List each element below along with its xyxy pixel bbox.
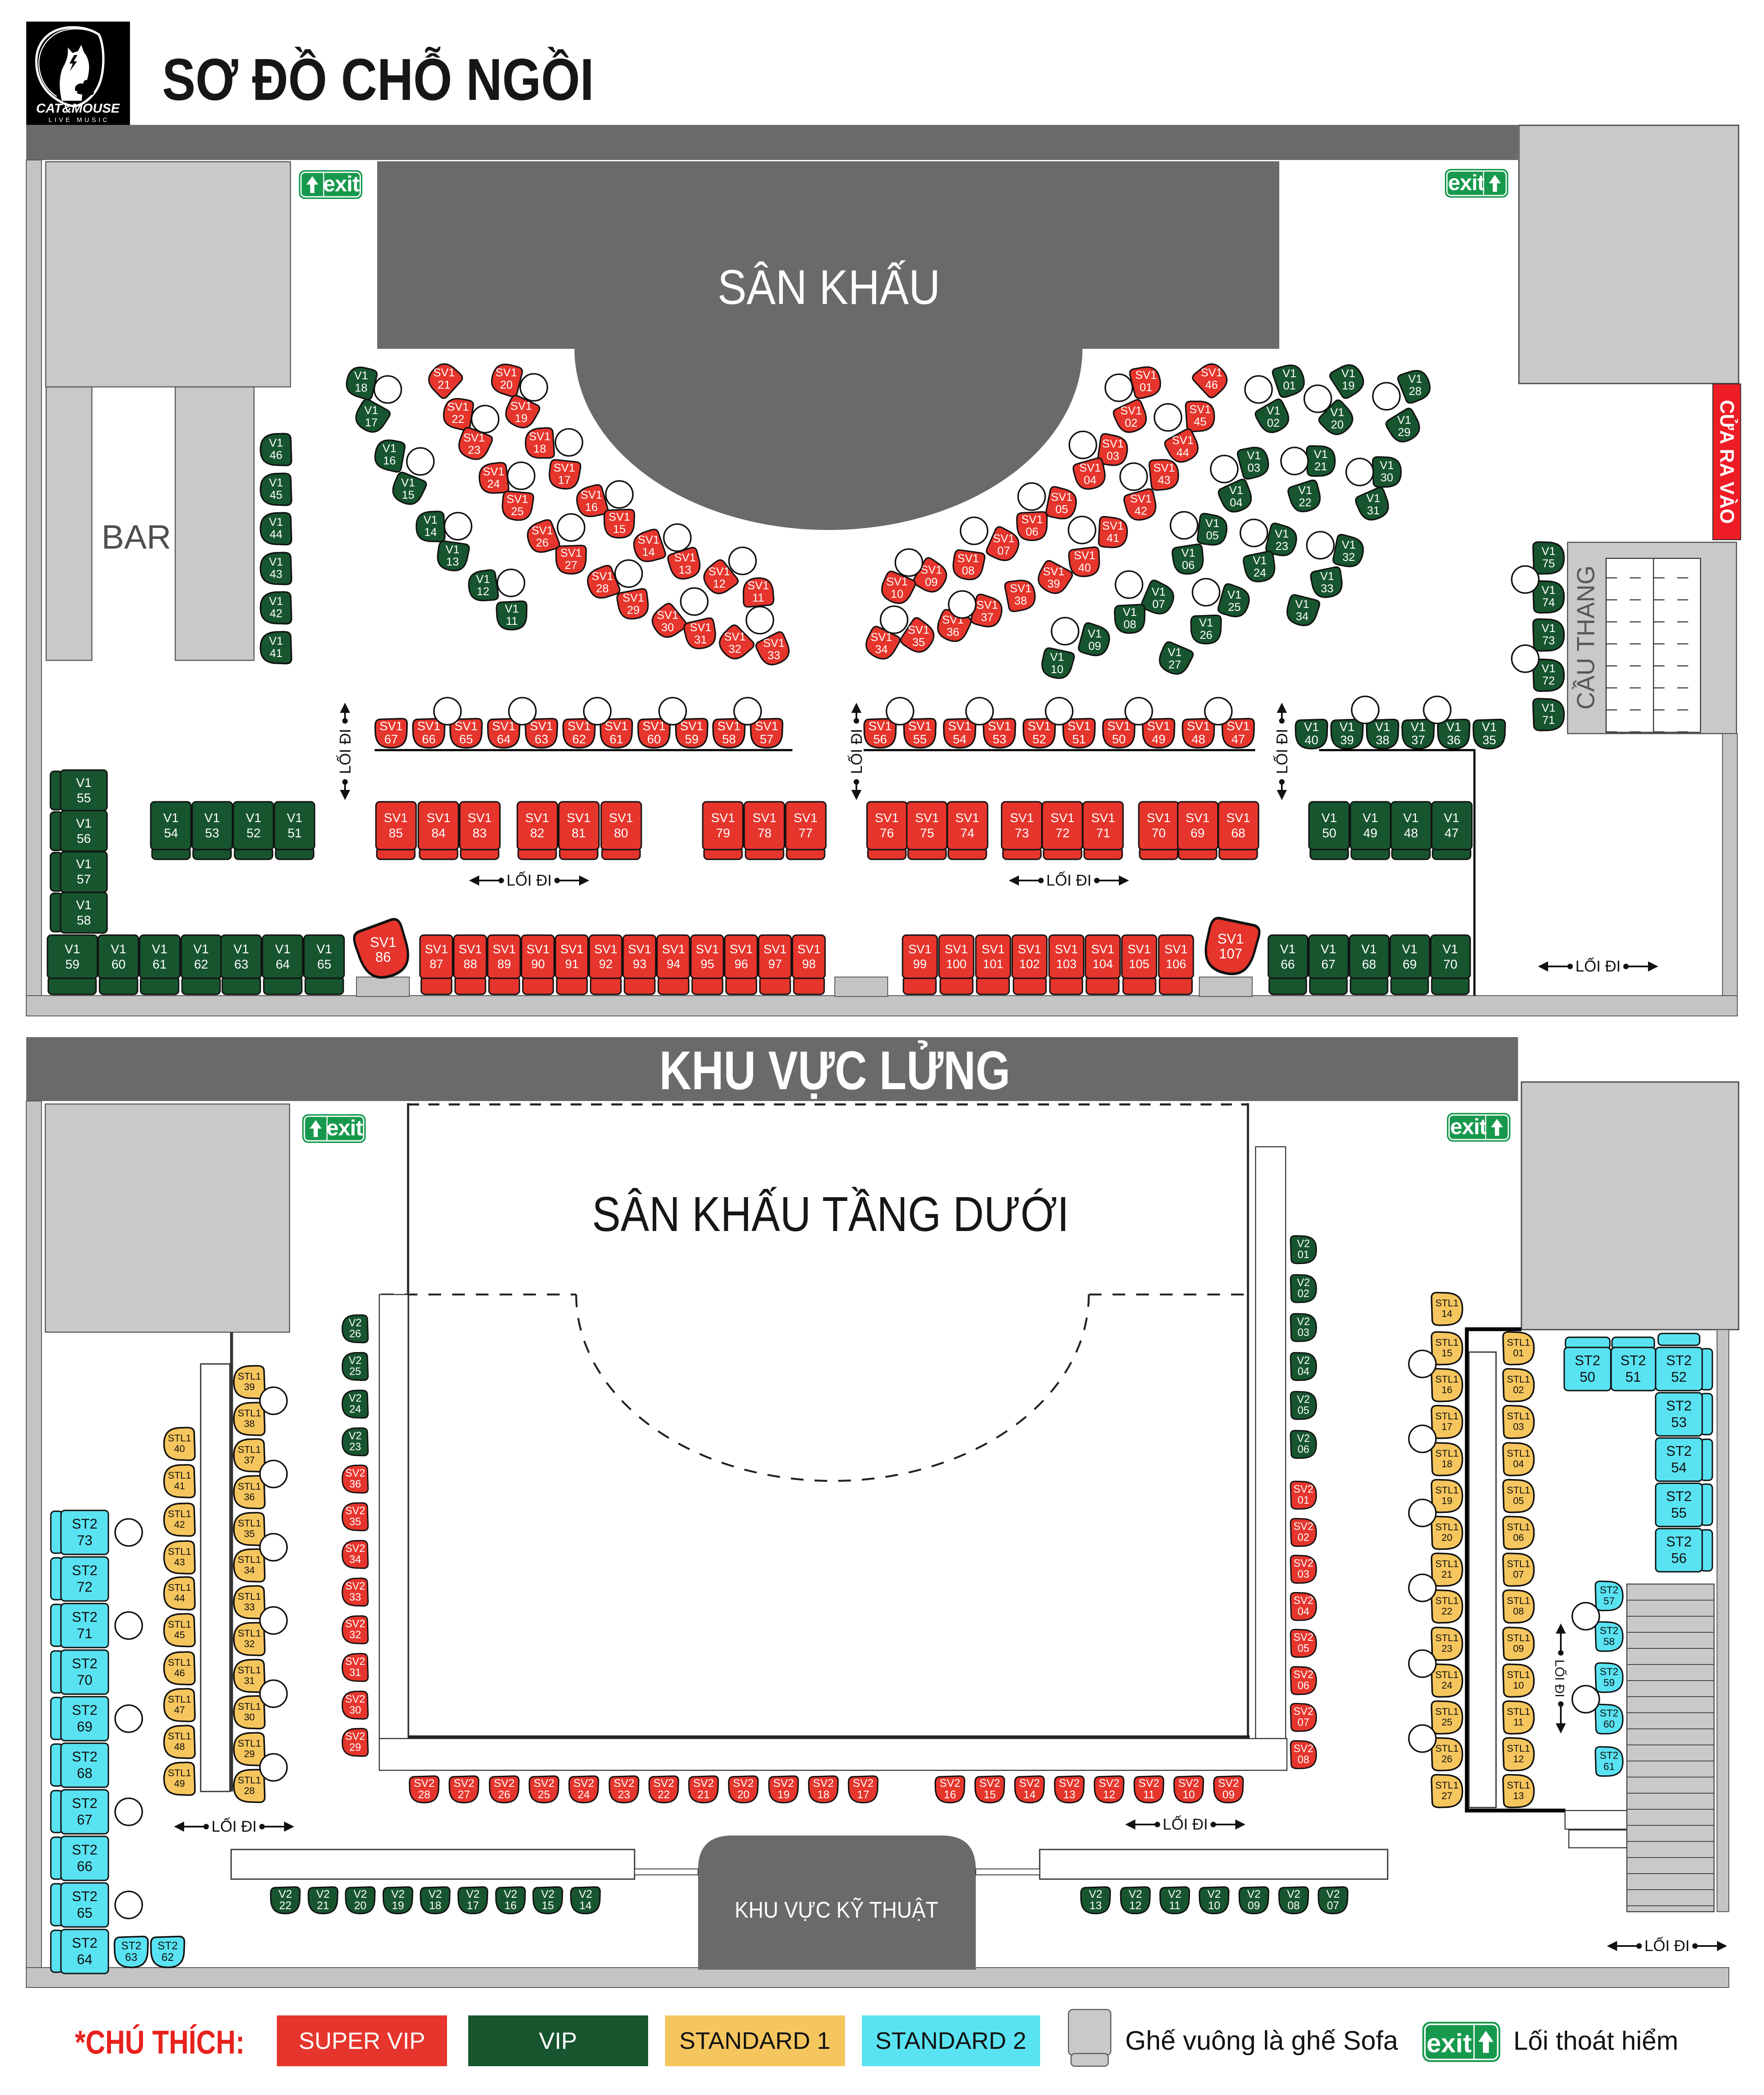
svg-text:SƠ ĐỒ CHỖ NGỒI: SƠ ĐỒ CHỖ NGỒI <box>162 46 594 113</box>
svg-text:LỐI ĐI: LỐI ĐI <box>1273 729 1291 774</box>
svg-text:V101: V101 <box>1282 367 1296 392</box>
svg-text:V212: V212 <box>1129 1888 1142 1912</box>
svg-text:V201: V201 <box>1297 1238 1310 1261</box>
svg-text:V221: V221 <box>316 1888 330 1912</box>
svg-text:V113: V113 <box>445 543 459 568</box>
svg-text:Ghế vuông là ghế Sofa: Ghế vuông là ghế Sofa <box>1125 2026 1398 2056</box>
svg-text:exit: exit <box>1450 1115 1486 1139</box>
svg-text:V215: V215 <box>541 1888 555 1912</box>
svg-text:V211: V211 <box>1168 1888 1182 1912</box>
svg-text:V202: V202 <box>1297 1277 1310 1300</box>
svg-text:LỐI ĐI: LỐI ĐI <box>1552 1659 1568 1698</box>
svg-text:CỬA RA VÀO: CỬA RA VÀO <box>1716 400 1738 524</box>
svg-text:V222: V222 <box>279 1888 292 1912</box>
svg-text:V124: V124 <box>1253 554 1267 579</box>
svg-text:V119: V119 <box>1341 367 1355 392</box>
svg-text:V139: V139 <box>1339 720 1354 747</box>
svg-text:LỐI ĐI: LỐI ĐI <box>1046 871 1092 889</box>
svg-text:SV1107: SV1107 <box>1217 931 1244 961</box>
svg-text:V174: V174 <box>1541 584 1555 609</box>
svg-text:V213: V213 <box>1089 1888 1102 1912</box>
svg-text:V146: V146 <box>269 436 283 461</box>
svg-text:V220: V220 <box>353 1888 367 1912</box>
svg-text:SÂN KHẤU TẦNG DƯỚI: SÂN KHẤU TẦNG DƯỚI <box>592 1186 1069 1242</box>
svg-text:V145: V145 <box>269 476 283 501</box>
svg-text:V110: V110 <box>1050 651 1064 676</box>
svg-text:exit: exit <box>326 1116 363 1140</box>
svg-text:V142: V142 <box>269 595 283 620</box>
svg-text:V129: V129 <box>1397 414 1411 439</box>
svg-text:V117: V117 <box>364 404 378 429</box>
svg-text:Lối thoát hiểm: Lối thoát hiểm <box>1513 2026 1678 2056</box>
svg-text:VIP: VIP <box>539 2027 577 2054</box>
svg-text:V214: V214 <box>579 1888 592 1912</box>
svg-text:V128: V128 <box>1408 373 1422 397</box>
svg-text:SUPER VIP: SUPER VIP <box>299 2027 425 2054</box>
svg-text:LỐI ĐI: LỐI ĐI <box>1163 1815 1208 1833</box>
svg-text:V144: V144 <box>269 516 283 541</box>
svg-text:V125: V125 <box>1227 588 1241 613</box>
svg-text:V224: V224 <box>349 1392 362 1415</box>
svg-text:V203: V203 <box>1297 1316 1310 1339</box>
svg-text:V208: V208 <box>1287 1888 1300 1912</box>
svg-text:V141: V141 <box>269 635 283 660</box>
svg-text:exit: exit <box>323 172 359 196</box>
svg-text:V112: V112 <box>476 573 490 598</box>
svg-text:LỐI ĐI: LỐI ĐI <box>1576 957 1621 975</box>
svg-text:LỐI ĐI: LỐI ĐI <box>847 729 865 774</box>
svg-text:V109: V109 <box>1088 627 1101 652</box>
svg-text:V136: V136 <box>1446 720 1461 747</box>
svg-text:V102: V102 <box>1266 404 1280 429</box>
svg-text:V210: V210 <box>1207 1888 1221 1912</box>
svg-text:V115: V115 <box>401 476 415 501</box>
svg-text:V140: V140 <box>1304 720 1319 747</box>
svg-text:STANDARD 1: STANDARD 1 <box>679 2027 831 2054</box>
svg-text:V133: V133 <box>1320 570 1334 595</box>
svg-text:BAR: BAR <box>102 518 171 556</box>
svg-text:*CHÚ THÍCH:: *CHÚ THÍCH: <box>75 2023 245 2061</box>
svg-text:KHU VỰC LỬNG: KHU VỰC LỬNG <box>660 1040 1010 1101</box>
svg-text:CAT&MOUSE: CAT&MOUSE <box>36 101 120 116</box>
svg-text:CẦU THANG: CẦU THANG <box>1572 566 1600 710</box>
svg-text:V118: V118 <box>354 369 368 394</box>
svg-text:LỐI ĐI: LỐI ĐI <box>212 1817 257 1835</box>
svg-text:LỐI ĐI: LỐI ĐI <box>507 871 552 889</box>
svg-text:V121: V121 <box>1314 448 1328 473</box>
svg-text:V130: V130 <box>1380 459 1394 484</box>
svg-text:V143: V143 <box>269 555 283 580</box>
svg-text:V123: V123 <box>1275 527 1289 552</box>
svg-text:LỐI ĐI: LỐI ĐI <box>1645 1937 1690 1954</box>
svg-text:V107: V107 <box>1151 585 1165 610</box>
svg-text:V204: V204 <box>1297 1355 1310 1377</box>
svg-text:STANDARD 2: STANDARD 2 <box>875 2027 1027 2054</box>
svg-text:KHU VỰC KỸ THUẬT: KHU VỰC KỸ THUẬT <box>735 1897 939 1923</box>
svg-text:V104: V104 <box>1229 484 1243 509</box>
svg-text:V138: V138 <box>1375 720 1390 747</box>
svg-text:V120: V120 <box>1330 406 1344 431</box>
svg-text:V205: V205 <box>1297 1394 1310 1416</box>
svg-text:exit: exit <box>1427 2029 1472 2058</box>
svg-text:V171: V171 <box>1541 701 1555 726</box>
svg-text:V226: V226 <box>349 1317 362 1340</box>
svg-text:V173: V173 <box>1541 622 1555 647</box>
svg-text:V172: V172 <box>1541 662 1555 687</box>
svg-text:V137: V137 <box>1411 720 1425 747</box>
svg-text:V108: V108 <box>1123 606 1137 631</box>
svg-text:V219: V219 <box>391 1888 405 1912</box>
svg-text:V135: V135 <box>1482 720 1496 747</box>
svg-text:V106: V106 <box>1181 547 1195 571</box>
svg-text:V126: V126 <box>1199 616 1213 641</box>
svg-text:V216: V216 <box>504 1888 517 1912</box>
svg-text:V207: V207 <box>1326 1888 1340 1912</box>
svg-text:V209: V209 <box>1247 1888 1261 1912</box>
svg-text:V218: V218 <box>428 1888 442 1912</box>
svg-text:V111: V111 <box>505 602 519 627</box>
svg-text:V122: V122 <box>1298 484 1312 509</box>
svg-text:V131: V131 <box>1366 492 1380 517</box>
svg-text:V114: V114 <box>423 513 437 538</box>
svg-text:V105: V105 <box>1205 517 1219 542</box>
svg-text:V206: V206 <box>1297 1433 1310 1455</box>
svg-text:V223: V223 <box>349 1430 362 1453</box>
svg-text:V132: V132 <box>1342 538 1355 563</box>
svg-text:V175: V175 <box>1541 545 1555 570</box>
svg-text:V103: V103 <box>1247 449 1261 474</box>
svg-text:V217: V217 <box>466 1888 480 1912</box>
svg-text:V116: V116 <box>382 442 396 467</box>
svg-text:LIVE MUSIC: LIVE MUSIC <box>48 116 110 124</box>
svg-text:SÂN KHẤU: SÂN KHẤU <box>718 260 940 315</box>
svg-text:V127: V127 <box>1168 646 1182 671</box>
svg-text:V225: V225 <box>349 1355 362 1377</box>
svg-text:exit: exit <box>1448 171 1484 195</box>
svg-text:LỐI ĐI: LỐI ĐI <box>336 729 354 774</box>
svg-text:V134: V134 <box>1295 598 1309 623</box>
